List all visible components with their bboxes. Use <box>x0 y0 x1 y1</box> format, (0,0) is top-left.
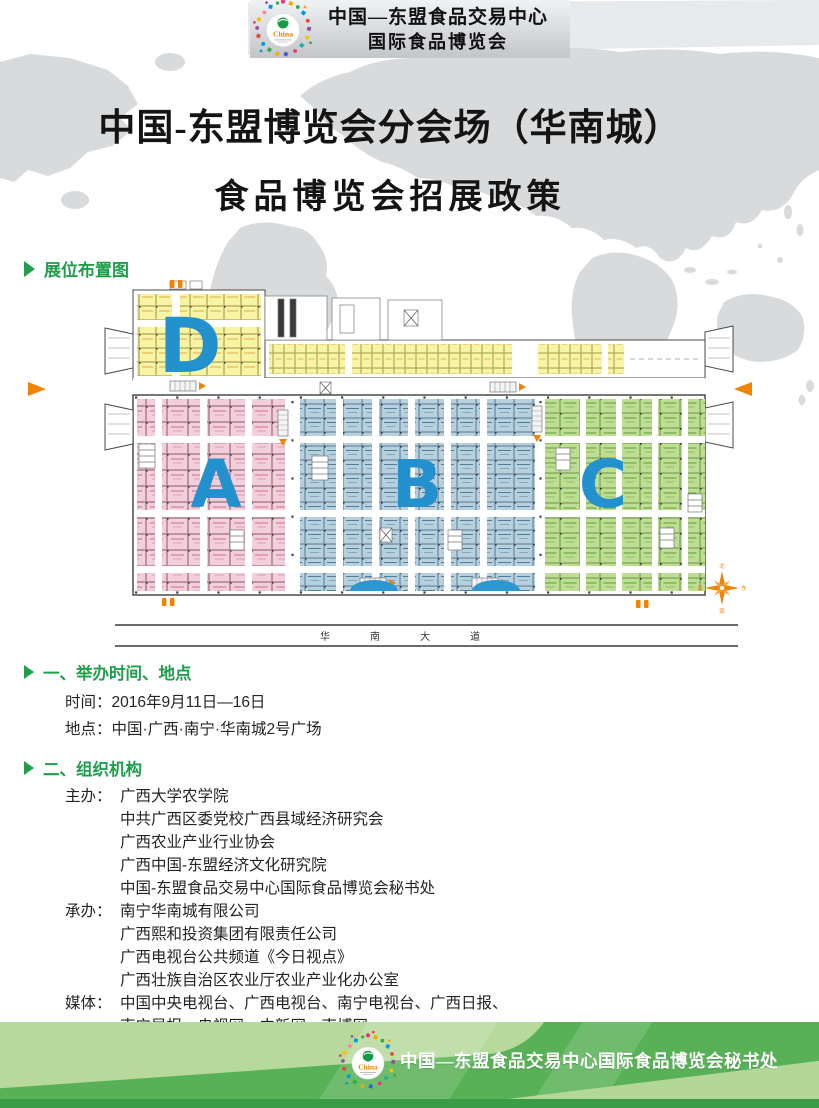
page-title-line1: 中国-东盟博览会分会场（华南城） <box>0 97 780 151</box>
triangle-icon <box>24 761 34 775</box>
svg-text:东: 东 <box>741 584 747 592</box>
info-sections: 一、举办时间、地点 时间：2016年9月11日—16日 地点：中国·广西·南宁·… <box>24 660 804 1038</box>
banner-title-line1: 中国—东盟食品交易中心 <box>312 5 564 30</box>
triangle-icon <box>24 665 34 679</box>
section-time-place: 一、举办时间、地点 时间：2016年9月11日—16日 地点：中国·广西·南宁·… <box>24 660 804 743</box>
svg-text:西: 西 <box>697 585 703 592</box>
org-item: 南宁华南城有限公司 <box>120 900 399 923</box>
org-item: 广西大学农学院 <box>120 785 435 808</box>
right-entrance-porch <box>705 326 733 372</box>
org-item: 广西壮族自治区农业厅农业产业化办公室 <box>120 969 399 992</box>
expo-logo-footer: China <box>336 1030 400 1094</box>
svg-text:北: 北 <box>719 562 725 570</box>
org-item: 中国中央电视台、广西电视台、南宁电视台、广西日报、 <box>120 992 508 1015</box>
org-item: 中共广西区委党校广西县域经济研究会 <box>120 808 435 831</box>
org-item: 广西农业产业行业协会 <box>120 831 435 854</box>
entrance-arrow-right <box>734 382 752 396</box>
svg-text:南: 南 <box>719 607 725 615</box>
info-line-place: 地点：中国·广西·南宁·华南城2号广场 <box>65 716 804 743</box>
zone-letter-a: A <box>190 446 241 523</box>
section-heading: 一、举办时间、地点 <box>24 660 804 684</box>
facility-marker-icon <box>636 600 649 608</box>
section-organization: 二、组织机构 主办： 广西大学农学院 中共广西区委党校广西县域经济研究会 广西农… <box>24 756 804 1038</box>
zone-letter-c: C <box>579 446 627 523</box>
footer: 中国—东盟食品交易中心国际食品博览会秘书处 <box>0 1022 819 1108</box>
footer-secretariat-text: 中国—东盟食品交易中心国际食品博览会秘书处 <box>400 1048 778 1073</box>
org-item: 中国-东盟食品交易中心国际食品博览会秘书处 <box>120 877 435 900</box>
road-name: 华南大道 <box>320 630 520 643</box>
logo-china-text: China <box>273 30 293 39</box>
org-label: 承办： <box>65 900 120 992</box>
triangle-icon <box>24 261 35 277</box>
road: 华南大道 <box>115 625 738 646</box>
org-item: 广西熙和投资集团有限责任公司 <box>120 923 399 946</box>
org-item: 广西中国-东盟经济文化研究院 <box>120 854 435 877</box>
org-group-hosts: 主办： 广西大学农学院 中共广西区委党校广西县域经济研究会 广西农业产业行业协会… <box>65 785 804 900</box>
banner-title-line2: 国际食品博览会 <box>312 30 564 54</box>
org-item: 广西电视台公共频道《今日视点》 <box>120 946 399 969</box>
org-label: 主办： <box>65 785 120 900</box>
facility-marker-icon <box>162 598 175 606</box>
header-banner-text: 中国—东盟食品交易中心 国际食品博览会 <box>312 5 564 54</box>
footer-content: 中国—东盟食品交易中心国际食品博览会秘书处 <box>400 1022 778 1099</box>
zone-letter-d: D <box>158 301 221 390</box>
zone-letter-b: B <box>392 446 442 523</box>
entrance-arrow-left <box>28 382 46 396</box>
section-title-text: 二、组织机构 <box>43 756 142 780</box>
section-heading: 二、组织机构 <box>24 756 804 780</box>
left-entrance-porch <box>105 328 133 374</box>
floor-plan: D A B C 北 南 东 西 华南大道 <box>20 278 760 655</box>
expo-logo-header: China <box>250 0 316 62</box>
org-group-organizers: 承办： 南宁华南城有限公司 广西熙和投资集团有限责任公司 广西电视台公共频道《今… <box>65 900 804 992</box>
left-entrance-porch <box>105 404 133 450</box>
right-entrance-porch <box>705 402 733 448</box>
section-title-text: 一、举办时间、地点 <box>43 660 192 684</box>
page-title-line2: 食品博览会招展政策 <box>0 169 780 218</box>
info-line-time: 时间：2016年9月11日—16日 <box>65 689 804 716</box>
poster-page: 中国—东盟食品交易中心 国际食品博览会 China 中国-东盟博览会分会场（华南… <box>0 0 819 1108</box>
logo-china-text: China <box>358 1062 378 1071</box>
